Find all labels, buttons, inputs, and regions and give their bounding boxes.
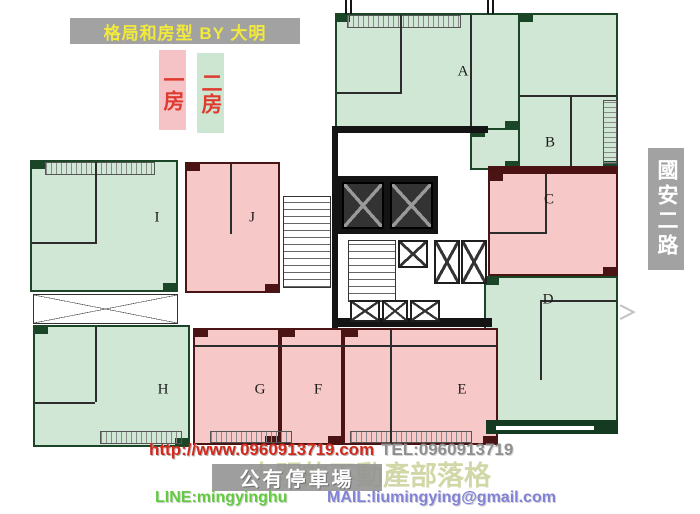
unit-j-region [185,162,280,293]
wall-segment [230,164,232,234]
wall-segment [470,15,472,128]
wall-segment [337,92,402,94]
legend-two-bedroom: 二房 [197,53,224,133]
elevator-shaft [342,182,384,229]
road-sign-label: 國安二路 [651,159,681,259]
roof-pipe [345,0,347,14]
wall-segment [332,126,488,133]
roof-pipe [487,0,489,14]
roof-pipe [350,0,352,14]
vent-shaft [434,240,460,284]
unit-c-label: C [544,192,554,209]
title-banner-label: 格局和房型 BY 大明 [104,19,267,44]
wall-segment [520,95,616,97]
website-watermark: http://www.0960913719.com [149,440,374,460]
vent-shaft [410,300,440,322]
wall-segment [95,327,97,402]
unit-f-label: F [314,382,322,399]
wall-segment [400,15,402,93]
mail-contact-watermark: MAIL:liumingying@gmail.com [327,489,556,507]
wall-segment [195,345,496,347]
unit-g-label: G [255,382,266,399]
stairwell [348,240,396,302]
balcony-band [603,100,617,164]
unit-h-label: H [158,382,169,399]
wall-segment [35,402,95,404]
wall-detail [496,426,594,430]
ramp-hatch [33,294,178,324]
vent-shaft [461,240,487,284]
unit-b-label: B [545,135,555,152]
unit-i-label: I [155,210,160,227]
wall-segment [570,97,572,168]
phone-watermark: TEL:0960913719 [381,440,513,460]
stairwell [283,196,331,288]
unit-a-region [335,13,520,130]
unit-d-label: D [543,292,554,309]
unit-b-region [470,128,520,170]
wall-segment [95,162,97,242]
wall-segment [540,300,542,380]
unit-a-label: A [458,64,469,81]
wall-segment [488,166,618,173]
title-banner: 格局和房型 BY 大明 [70,18,300,44]
unit-j-label: J [249,210,255,227]
unit-e-label: E [457,382,466,399]
vent-shaft [382,300,408,322]
balcony-band [347,15,461,28]
floorplan-canvas: 格局和房型 BY 大明 一房 二房 國安二路 ABCDEFGHIJ [0,0,700,514]
wall-segment [32,242,97,244]
line-contact-watermark: LINE:mingyinghu [155,489,287,507]
east-arrow-icon: ＞ [618,298,637,325]
wall-segment [390,330,392,443]
vent-shaft [350,300,380,322]
public-parking-label: 公有停車場 [240,463,355,492]
roof-pipe [492,0,494,14]
balcony-band [45,162,155,175]
road-sign: 國安二路 [648,148,684,270]
public-parking-banner: 公有停車場 [212,464,382,491]
legend-one-bedroom: 一房 [159,50,186,130]
elevator-shaft [390,182,433,229]
unit-c-region [488,172,618,276]
wall-segment [490,232,547,234]
vent-shaft [398,240,428,268]
